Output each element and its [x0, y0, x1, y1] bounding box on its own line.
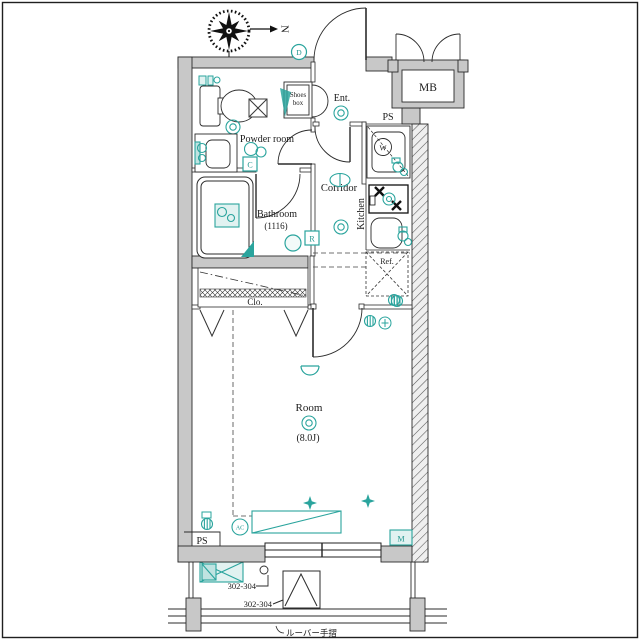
shoes-box-doors [312, 85, 328, 117]
floor-plan-page: 302-304 302-304 ルーバー手摺 MB [0, 0, 640, 640]
bathroom-size-label: (1116) [264, 221, 287, 231]
shoes-box-label-2: box [293, 100, 304, 107]
doorbell-tag-letter: D [296, 48, 302, 57]
bathroom-label: Bathroom [257, 209, 297, 220]
page-border [3, 3, 638, 638]
wall-left [178, 57, 192, 562]
closet-folding-doors [200, 310, 308, 336]
corridor-label: Corridor [321, 183, 358, 194]
corridor-door [315, 127, 350, 162]
kitchen-sink [371, 218, 412, 248]
structural-walls [178, 57, 428, 562]
wall-right-party [412, 124, 428, 562]
main-room: Room (8.0J) AC M PS [184, 296, 412, 548]
shoes-box [284, 82, 328, 118]
ac-unit-space [252, 511, 341, 533]
meter-box-label: MB [419, 82, 437, 94]
powder-room: C Powder room [195, 76, 294, 172]
ac-tag: AC [232, 519, 248, 535]
wall-top [178, 57, 314, 68]
railing-note-leader [276, 626, 284, 633]
sliding-window [265, 543, 381, 557]
room-label: Room [296, 402, 323, 414]
shower-unit [215, 204, 239, 227]
room-size-label: (8.0J) [296, 433, 319, 444]
entrance-area: Shoes box Ent. D [284, 45, 350, 121]
railing-post [186, 598, 201, 631]
powder-room-label: Powder room [240, 134, 294, 145]
railing-post [410, 598, 425, 631]
closet-label: Clo. [247, 297, 262, 307]
meter-box: MB [388, 34, 468, 108]
entrance-door [314, 8, 366, 60]
kitchen-label: Kitchen [356, 198, 367, 230]
remote-tag-letter: R [309, 235, 315, 244]
floor-plan-drawing: 302-304 302-304 ルーバー手摺 MB [0, 0, 640, 640]
north-arrow-head [270, 26, 278, 33]
bath-stool-symbol [285, 235, 301, 251]
stove [369, 185, 408, 213]
washer-tag-letter: W [379, 144, 387, 153]
meter-tag: M [390, 530, 412, 545]
controller-tag: C [243, 157, 257, 171]
room-door [311, 304, 364, 357]
shoes-box-label-1: Shoes [290, 92, 307, 99]
star-marker [303, 494, 375, 510]
tv-terminal-symbol [379, 317, 391, 329]
toilet-accessories [199, 76, 220, 85]
entrance-label: Ent. [334, 93, 350, 104]
outlet-plate [202, 512, 211, 518]
hanger-pipe [200, 289, 306, 297]
balcony-drain-marker [256, 566, 268, 586]
meter-box-doors [396, 34, 460, 62]
doorbell-tag: D [292, 45, 307, 60]
north-label: N [278, 25, 290, 33]
meter-tag-letter: M [397, 535, 404, 544]
remote-tag: R [305, 231, 319, 245]
pipe-shaft-bottom-label: PS [196, 536, 207, 547]
balcony-partition-label: 302-304 [244, 599, 273, 609]
evacuation-hatch [200, 562, 243, 582]
closet: Clo. [198, 268, 308, 336]
controller-tag-letter: C [247, 161, 252, 170]
balcony-hatch-label: 302-304 [228, 581, 257, 591]
pipe-shaft-top-label: PS [382, 112, 393, 123]
wall-stub-mb [402, 108, 420, 124]
compass: N [209, 11, 290, 57]
corridor-light [330, 174, 350, 187]
room-ceiling-drop-line [233, 310, 252, 516]
washer-pan [367, 126, 410, 178]
exhaust-fan [249, 99, 267, 117]
ac-tag-letter: AC [236, 525, 245, 532]
bathroom: Bathroom (1116) [197, 177, 301, 258]
wall-bottom-left [178, 546, 265, 562]
toilet [200, 86, 257, 126]
wall-light-symbol [301, 366, 319, 375]
railing-note-label: ルーバー手摺 [286, 628, 337, 638]
refrigerator-label: Ref. [380, 257, 394, 266]
balcony-partition-panel [273, 571, 320, 608]
